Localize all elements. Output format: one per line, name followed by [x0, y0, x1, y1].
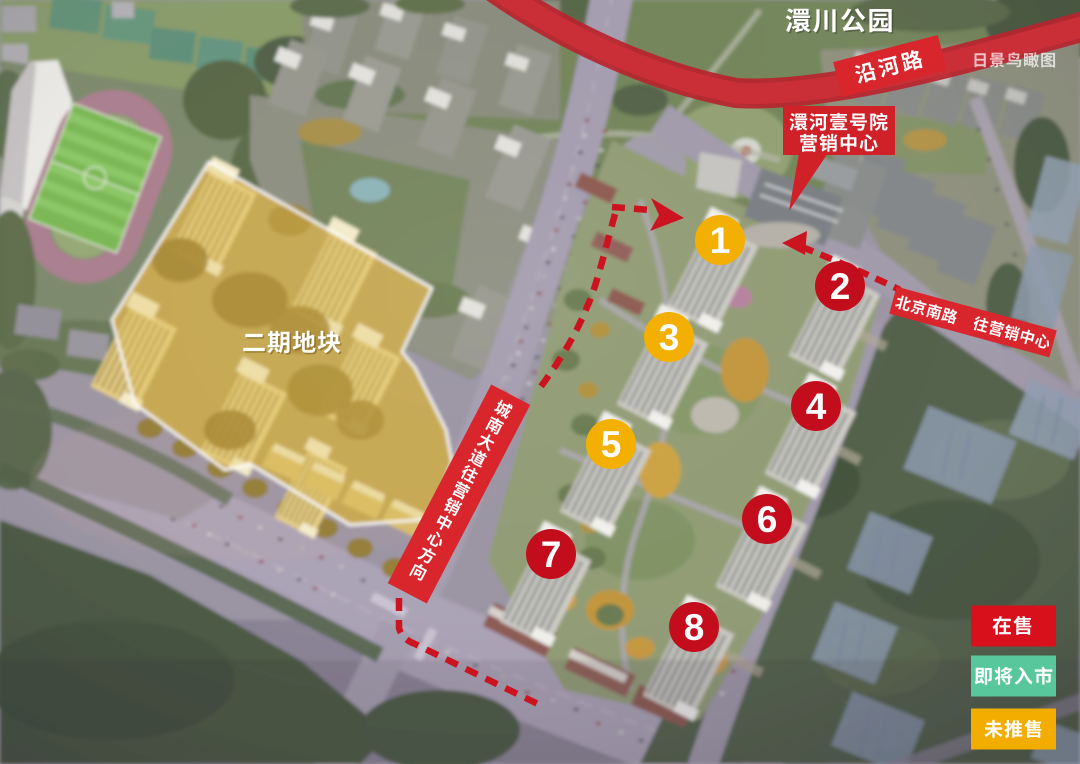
svg-text:1: 1: [710, 220, 731, 261]
svg-text:7: 7: [541, 534, 562, 575]
svg-text:4: 4: [806, 386, 827, 427]
svg-text:6: 6: [757, 499, 778, 540]
svg-text:5: 5: [601, 424, 622, 465]
svg-text:2: 2: [830, 266, 851, 307]
svg-text:3: 3: [659, 317, 680, 358]
svg-text:8: 8: [684, 607, 705, 648]
